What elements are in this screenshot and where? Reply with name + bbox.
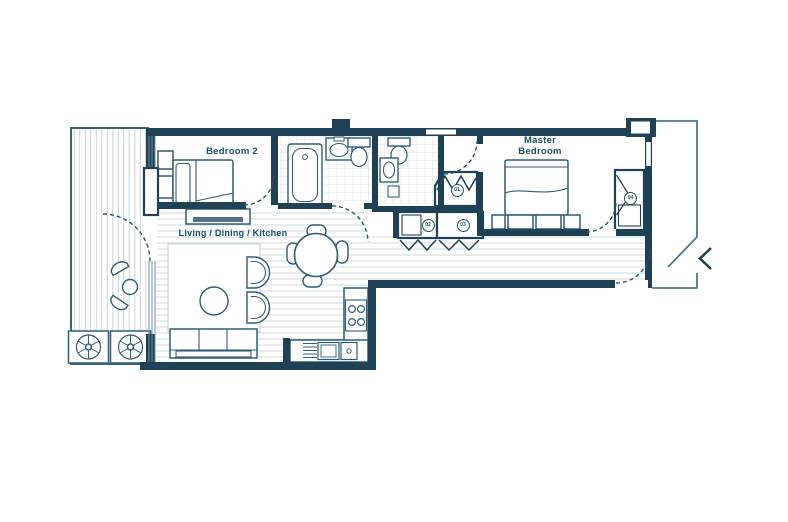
bed-end-bench <box>536 215 561 229</box>
nightstand <box>158 176 173 198</box>
wall-pier <box>144 168 158 215</box>
wardrobe-marker-01: 01 <box>451 184 464 197</box>
bed-end-bench <box>508 215 533 229</box>
communal-corridor-outline <box>652 121 697 288</box>
nightstand <box>564 215 580 229</box>
entrance-chevron-icon <box>700 248 711 269</box>
balcony-table <box>123 280 138 295</box>
bedroom2-door-arc <box>244 175 274 205</box>
closet-marker-02: 02 <box>422 219 435 232</box>
master-bedroom-label-line2: Bedroom <box>490 146 590 157</box>
bedroom2-label: Bedroom 2 <box>172 146 292 157</box>
sofa <box>170 329 257 358</box>
floor-plan-page: Bedroom 2 Master Bedroom Living / Dining… <box>0 0 788 522</box>
double-bed <box>505 160 568 215</box>
balcony-decking <box>72 130 148 363</box>
pillow <box>176 164 190 204</box>
living-dining-kitchen-label: Living / Dining / Kitchen <box>163 228 303 239</box>
wardrobe-marker-04: 04 <box>624 192 637 205</box>
hall-floor <box>368 236 645 280</box>
toilet <box>388 138 410 146</box>
toilet <box>348 138 370 147</box>
balcony <box>69 128 151 364</box>
nightstand <box>158 151 173 169</box>
balcony-door-opening <box>145 215 157 261</box>
appliance <box>402 215 421 235</box>
coffee-table <box>200 287 228 315</box>
master-bedroom-label-line1: Master <box>490 135 590 146</box>
closet-marker-03: 03 <box>457 219 470 232</box>
dining-table <box>295 234 338 277</box>
master-bedroom <box>492 160 580 229</box>
nightstand <box>492 215 505 229</box>
bathroom2-door-arc <box>444 141 477 174</box>
floor-plan-drawing <box>0 0 788 522</box>
master-bedroom-door-arc <box>586 202 616 232</box>
kitchen-hob <box>346 300 367 331</box>
